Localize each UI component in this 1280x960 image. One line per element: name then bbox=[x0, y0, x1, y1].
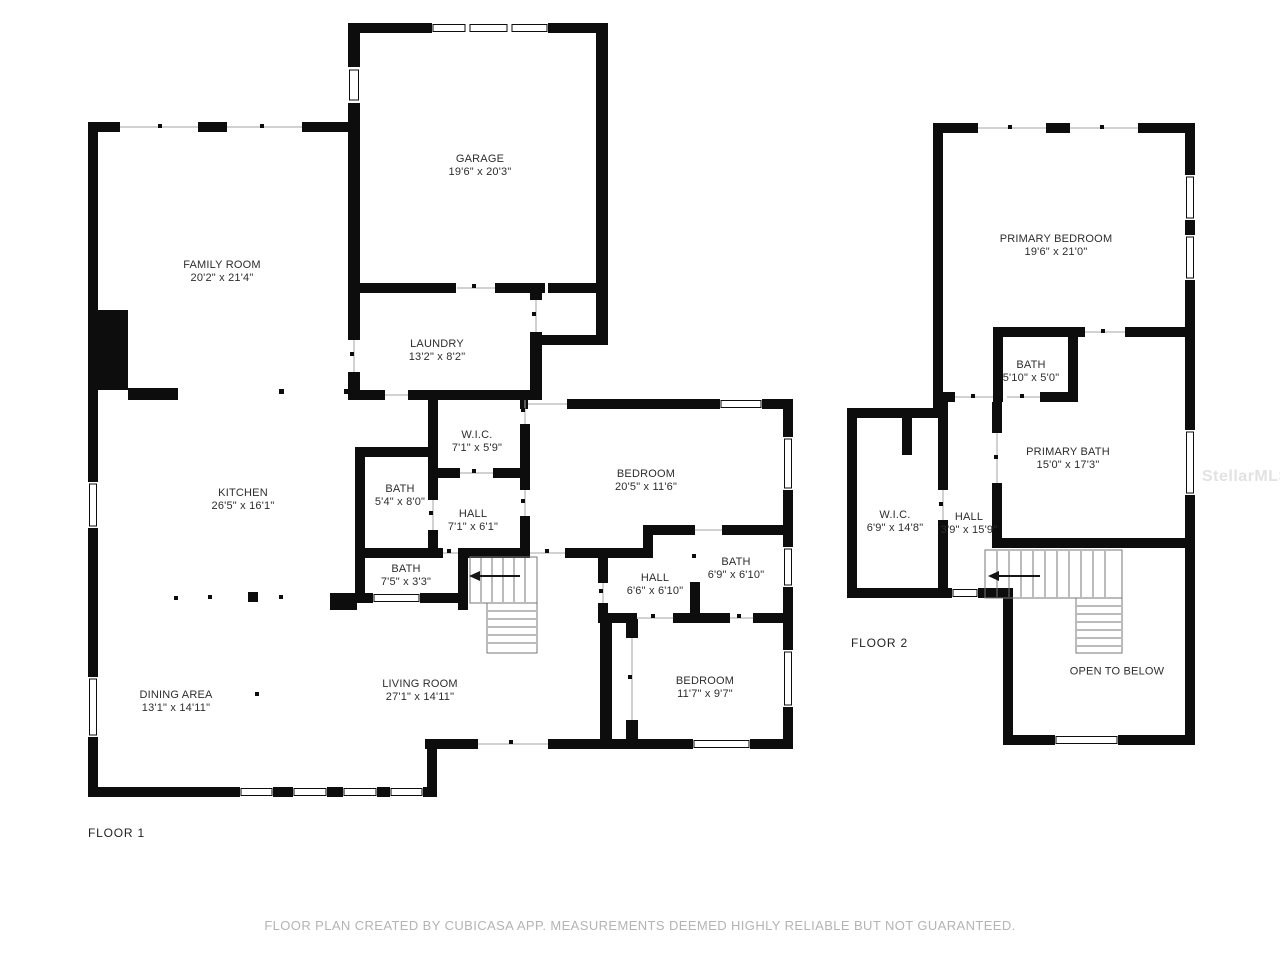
room-name: HALL bbox=[941, 511, 998, 524]
room-name: BATH bbox=[708, 556, 765, 569]
room-label-primary-bath: PRIMARY BATH15'0" x 17'3" bbox=[1026, 446, 1110, 472]
room-label-wic-2: W.I.C.6'9" x 14'8" bbox=[867, 509, 924, 535]
room-label-family-room: FAMILY ROOM20'2" x 21'4" bbox=[183, 259, 261, 285]
room-dims: 26'5" x 16'1" bbox=[212, 500, 275, 513]
room-label-hall-3: HALL3'9" x 15'9" bbox=[941, 511, 998, 537]
room-name: PRIMARY BATH bbox=[1026, 446, 1110, 459]
floor2-label: FLOOR 2 bbox=[851, 636, 908, 650]
room-name: BATH bbox=[375, 483, 425, 496]
room-name: KITCHEN bbox=[212, 487, 275, 500]
room-label-wic: W.I.C.7'1" x 5'9" bbox=[452, 429, 502, 455]
room-name: HALL bbox=[448, 508, 498, 521]
room-name: PRIMARY BEDROOM bbox=[1000, 233, 1113, 246]
room-label-hall-1: HALL7'1" x 6'1" bbox=[448, 508, 498, 534]
room-dims: 6'9" x 6'10" bbox=[708, 569, 765, 582]
room-dims: 13'1" x 14'11" bbox=[139, 702, 212, 715]
room-dims: 5'4" x 8'0" bbox=[375, 496, 425, 509]
room-label-hall-2: HALL6'6" x 6'10" bbox=[627, 572, 684, 598]
room-name: W.I.C. bbox=[867, 509, 924, 522]
windows bbox=[88, 23, 1195, 797]
room-label-primary-bedroom: PRIMARY BEDROOM19'6" x 21'0" bbox=[1000, 233, 1113, 259]
room-dims: 6'6" x 6'10" bbox=[627, 585, 684, 598]
room-dims: 19'6" x 21'0" bbox=[1000, 246, 1113, 259]
opening-lines bbox=[120, 127, 1138, 744]
room-dims: 15'0" x 17'3" bbox=[1026, 459, 1110, 472]
room-name: HALL bbox=[627, 572, 684, 585]
room-name: BATH bbox=[1003, 359, 1060, 372]
room-label-bedroom-2: BEDROOM11'7" x 9'7" bbox=[676, 675, 734, 701]
room-name: BATH bbox=[381, 563, 431, 576]
room-label-living-room: LIVING ROOM27'1" x 14'11" bbox=[382, 678, 458, 704]
room-dims: 19'6" x 20'3" bbox=[449, 166, 512, 179]
floor2-walls bbox=[847, 123, 1195, 745]
room-dims: 7'1" x 5'9" bbox=[452, 442, 502, 455]
room-label-bedroom-1: BEDROOM20'5" x 11'6" bbox=[615, 468, 677, 494]
room-label-bath-3: BATH6'9" x 6'10" bbox=[708, 556, 765, 582]
room-label-garage: GARAGE19'6" x 20'3" bbox=[449, 153, 512, 179]
room-name: BEDROOM bbox=[676, 675, 734, 688]
room-dims: 7'5" x 3'3" bbox=[381, 576, 431, 589]
room-name: GARAGE bbox=[449, 153, 512, 166]
room-label-bath-4: BATH5'10" x 5'0" bbox=[1003, 359, 1060, 385]
room-name: LAUNDRY bbox=[409, 338, 466, 351]
footer-disclaimer: FLOOR PLAN CREATED BY CUBICASA APP. MEAS… bbox=[0, 918, 1280, 933]
room-name: OPEN TO BELOW bbox=[1070, 666, 1165, 679]
room-label-laundry: LAUNDRY13'2" x 8'2" bbox=[409, 338, 466, 364]
room-label-bath-2: BATH7'5" x 3'3" bbox=[381, 563, 431, 589]
room-name: LIVING ROOM bbox=[382, 678, 458, 691]
room-name: W.I.C. bbox=[452, 429, 502, 442]
room-dims: 7'1" x 6'1" bbox=[448, 521, 498, 534]
room-dims: 3'9" x 15'9" bbox=[941, 524, 998, 537]
staircase-floor1 bbox=[469, 557, 537, 653]
room-label-open-to-below: OPEN TO BELOW bbox=[1070, 666, 1165, 679]
floor1-label: FLOOR 1 bbox=[88, 826, 145, 840]
room-dims: 6'9" x 14'8" bbox=[867, 522, 924, 535]
room-dims: 20'5" x 11'6" bbox=[615, 481, 677, 494]
room-label-bath-1: BATH5'4" x 8'0" bbox=[375, 483, 425, 509]
room-dims: 20'2" x 21'4" bbox=[183, 272, 261, 285]
floor-plan: FLOOR 1 FLOOR 2 StellarMLS GARAGE19'6" x… bbox=[0, 0, 1280, 960]
room-name: FAMILY ROOM bbox=[183, 259, 261, 272]
stellar-mls-watermark: StellarMLS bbox=[1202, 468, 1280, 486]
room-dims: 13'2" x 8'2" bbox=[409, 351, 466, 364]
room-dims: 27'1" x 14'11" bbox=[382, 691, 458, 704]
room-label-dining-area: DINING AREA13'1" x 14'11" bbox=[139, 689, 212, 715]
room-dims: 5'10" x 5'0" bbox=[1003, 372, 1060, 385]
room-label-kitchen: KITCHEN26'5" x 16'1" bbox=[212, 487, 275, 513]
room-name: BEDROOM bbox=[615, 468, 677, 481]
room-name: DINING AREA bbox=[139, 689, 212, 702]
room-dims: 11'7" x 9'7" bbox=[676, 688, 734, 701]
